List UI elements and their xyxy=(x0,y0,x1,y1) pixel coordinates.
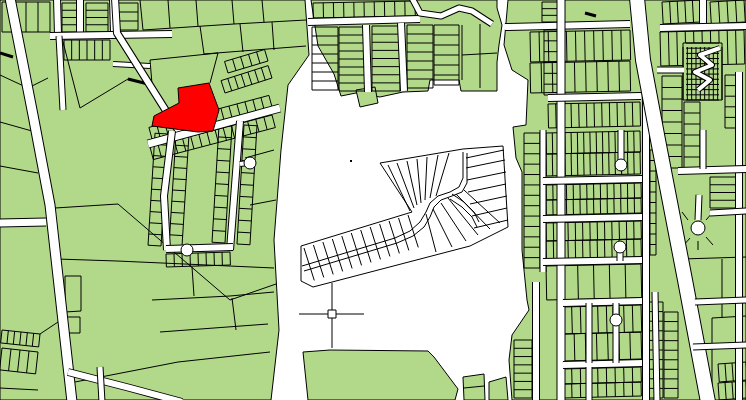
map-viewport xyxy=(0,0,746,400)
hatch-park xyxy=(683,43,722,100)
map-canvas[interactable] xyxy=(0,0,746,400)
